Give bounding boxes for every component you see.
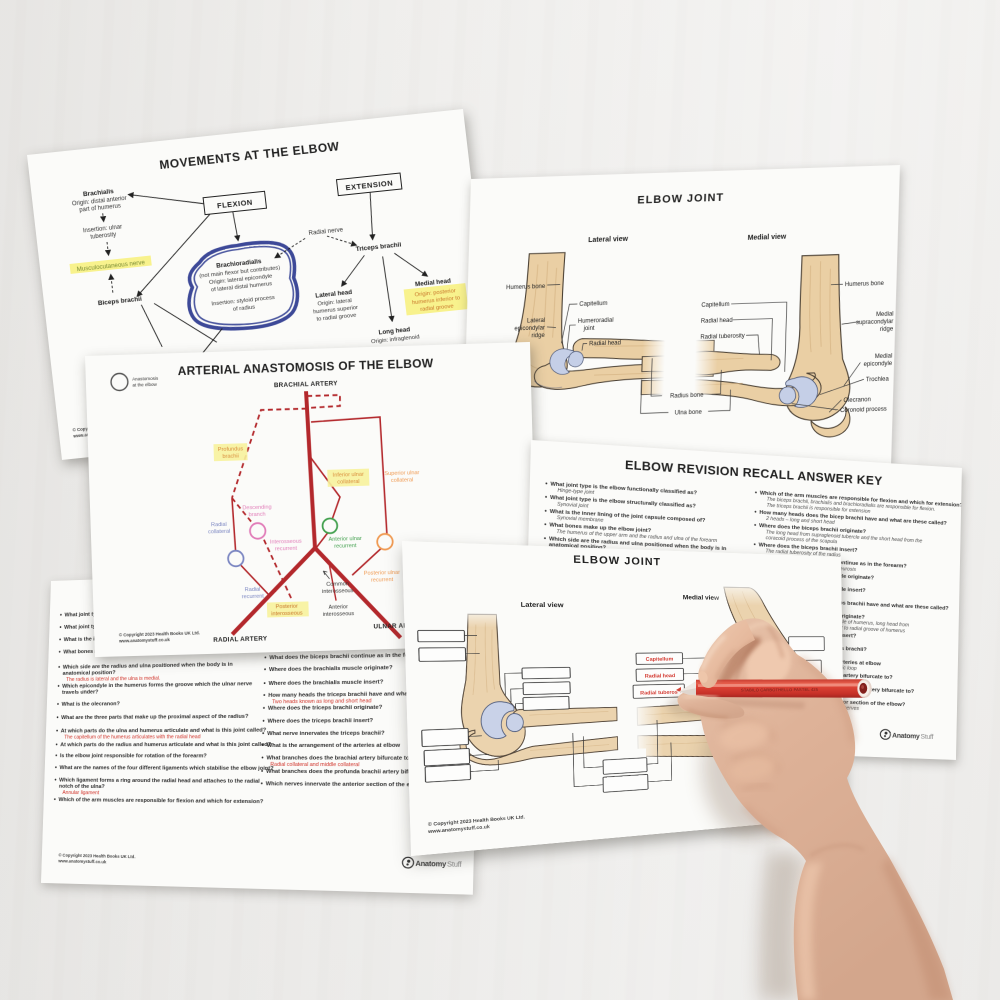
svg-text:MOVEMENTS AT THE ELBOW: MOVEMENTS AT THE ELBOW xyxy=(159,139,341,172)
svg-text:Anatomy: Anatomy xyxy=(415,860,446,868)
svg-text:ELBOW JOINT: ELBOW JOINT xyxy=(573,553,661,568)
svg-text:•: • xyxy=(55,753,57,759)
svg-text:•: • xyxy=(544,521,546,528)
svg-text:•: • xyxy=(755,490,757,497)
svg-text:Superior ulnar: Superior ulnar xyxy=(384,470,419,477)
svg-text:Profundus: Profundus xyxy=(218,446,244,453)
svg-text:Anterior ulnar: Anterior ulnar xyxy=(328,536,362,543)
svg-text:interosseous: interosseous xyxy=(323,611,355,618)
svg-text:Where does the triceps brachii: Where does the triceps brachii insert? xyxy=(267,718,373,725)
svg-text:•: • xyxy=(57,702,59,708)
svg-text:•: • xyxy=(263,681,265,687)
svg-text:recurrent: recurrent xyxy=(334,543,357,550)
svg-text:ARTERIAL ANASTOMOSIS OF THE EL: ARTERIAL ANASTOMOSIS OF THE ELBOW xyxy=(178,356,434,378)
svg-text:recurrent: recurrent xyxy=(371,577,394,584)
svg-text:Medial view: Medial view xyxy=(747,233,786,241)
svg-text:Lateral view: Lateral view xyxy=(521,600,564,608)
svg-text:ridge: ridge xyxy=(531,333,545,339)
svg-text:•: • xyxy=(754,509,756,516)
svg-text:•: • xyxy=(261,769,263,775)
svg-text:ELBOW JOINT: ELBOW JOINT xyxy=(637,192,724,207)
svg-text:Radial collateral and middle c: Radial collateral and middle collateral xyxy=(270,762,359,769)
svg-text:•: • xyxy=(545,480,547,487)
svg-text:collateral: collateral xyxy=(337,479,359,486)
svg-text:Capitellum: Capitellum xyxy=(701,302,729,309)
svg-text:What are the three parts that: What are the three parts that make up th… xyxy=(61,714,248,722)
svg-text:Biceps brachii: Biceps brachii xyxy=(98,296,143,308)
svg-text:•: • xyxy=(262,718,264,724)
svg-text:Anterior: Anterior xyxy=(328,604,348,611)
svg-text:supracondylar: supracondylar xyxy=(856,319,894,326)
svg-text:travels under?: travels under? xyxy=(62,689,99,696)
svg-text:Radial head: Radial head xyxy=(701,318,733,325)
svg-text:•: • xyxy=(56,728,58,734)
svg-text:notch of the ulna?: notch of the ulna? xyxy=(59,784,105,791)
svg-text:•: • xyxy=(261,781,263,787)
svg-text:•: • xyxy=(56,742,58,748)
svg-text:Medial: Medial xyxy=(875,353,893,360)
svg-text:•: • xyxy=(262,731,264,737)
svg-text:www.anatomystuff.co.uk: www.anatomystuff.co.uk xyxy=(118,637,170,643)
svg-text:Humerus bone: Humerus bone xyxy=(845,281,885,288)
svg-text:Posterior ulnar: Posterior ulnar xyxy=(364,570,400,577)
svg-text:Trochlea: Trochlea xyxy=(866,376,890,383)
svg-text:•: • xyxy=(54,777,56,783)
svg-text:Is the elbow joint responsible: Is the elbow joint responsible for rotat… xyxy=(60,753,207,759)
svg-text:BRACHIAL ARTERY: BRACHIAL ARTERY xyxy=(274,380,339,389)
svg-text:Stuff: Stuff xyxy=(447,861,462,869)
svg-text:Synovial joint: Synovial joint xyxy=(557,502,589,509)
svg-text:Descending: Descending xyxy=(242,505,271,512)
svg-text:Lateral view: Lateral view xyxy=(588,236,629,244)
svg-text:What nerve innervates the tric: What nerve innervates the triceps brachi… xyxy=(267,730,385,737)
svg-text:Olecranon: Olecranon xyxy=(843,397,871,404)
svg-text:Anatomy: Anatomy xyxy=(892,732,920,740)
svg-text:Hinge-type joint: Hinge-type joint xyxy=(557,488,594,496)
svg-text:Medial view: Medial view xyxy=(683,593,719,601)
svg-text:recurrent: recurrent xyxy=(242,594,265,601)
svg-text:Where does the brachialis musc: Where does the brachialis muscle origina… xyxy=(269,665,393,673)
svg-text:Capitellum: Capitellum xyxy=(579,301,607,308)
svg-text:of radius: of radius xyxy=(233,305,256,313)
svg-text:tuberosity: tuberosity xyxy=(90,232,116,241)
svg-text:•: • xyxy=(54,797,56,803)
svg-text:The capitellum of the humerus: The capitellum of the humerus articulate… xyxy=(64,734,201,741)
svg-text:branch: branch xyxy=(249,512,266,519)
svg-text:What branches does the brachia: What branches does the brachial artery b… xyxy=(266,755,413,762)
svg-text:•: • xyxy=(545,494,547,501)
svg-text:Which epicondyle in the humeru: Which epicondyle in the humerus forms th… xyxy=(62,681,252,690)
svg-text:Lateral: Lateral xyxy=(527,318,545,325)
svg-text:www.anatomystuff.co.uk: www.anatomystuff.co.uk xyxy=(57,858,107,864)
svg-text:anatomical position?: anatomical position? xyxy=(62,670,115,677)
svg-text:Triceps brachii: Triceps brachii xyxy=(355,241,402,253)
svg-text:•: • xyxy=(58,665,60,671)
svg-text:Common: Common xyxy=(326,581,349,588)
svg-text:•: • xyxy=(56,715,58,721)
svg-text:•: • xyxy=(545,508,547,515)
svg-text:at the elbow: at the elbow xyxy=(132,382,157,388)
svg-text:interosseous: interosseous xyxy=(271,611,303,618)
svg-text:•: • xyxy=(60,612,62,618)
svg-text:Where does the brachialis musc: Where does the brachialis muscle insert? xyxy=(268,679,383,687)
svg-text:•: • xyxy=(264,655,266,661)
svg-text:brachii: brachii xyxy=(222,453,239,460)
svg-text:Radial: Radial xyxy=(245,587,261,593)
svg-text:FLEXION: FLEXION xyxy=(217,198,254,211)
svg-text:•: • xyxy=(261,755,263,761)
svg-text:joint: joint xyxy=(583,326,595,332)
svg-text:Posterior: Posterior xyxy=(276,604,298,611)
svg-text:Where does the triceps brachii: Where does the triceps brachii originate… xyxy=(268,704,383,711)
svg-text:•: • xyxy=(263,693,265,699)
svg-text:collateral: collateral xyxy=(391,477,413,484)
svg-text:Anastomosis: Anastomosis xyxy=(132,376,159,382)
svg-text:epicondylar: epicondylar xyxy=(514,325,545,332)
svg-text:•: • xyxy=(544,535,546,542)
svg-text:At which parts do the ulna and: At which parts do the ulna and humerus a… xyxy=(61,727,267,734)
svg-text:What is the olecranon?: What is the olecranon? xyxy=(61,701,119,708)
svg-text:collateral: collateral xyxy=(208,529,230,536)
svg-text:recurrent: recurrent xyxy=(275,546,298,553)
svg-text:ridge: ridge xyxy=(880,326,894,332)
svg-text:Ulna bone: Ulna bone xyxy=(675,409,703,416)
svg-text:Coronoid process: Coronoid process xyxy=(840,406,887,414)
svg-text:•: • xyxy=(59,637,61,643)
svg-text:epicondyle: epicondyle xyxy=(864,361,893,368)
svg-text:What are the names of the four: What are the names of the four different… xyxy=(59,765,273,772)
svg-text:Humeroradial: Humeroradial xyxy=(578,318,614,325)
svg-text:•: • xyxy=(262,743,264,749)
svg-text:Radial head: Radial head xyxy=(589,340,621,347)
svg-text:Medial: Medial xyxy=(876,312,894,319)
svg-text:What is the arrangement of the: What is the arrangement of the arteries … xyxy=(267,742,402,749)
svg-text:•: • xyxy=(59,625,61,631)
svg-text:Which of the arm muscles are r: Which of the arm muscles are responsible… xyxy=(58,797,263,805)
svg-text:Capitellum: Capitellum xyxy=(646,657,674,663)
svg-text:•: • xyxy=(59,649,61,655)
svg-text:Radial nerve: Radial nerve xyxy=(308,226,344,237)
svg-text:Interosseous: Interosseous xyxy=(270,539,302,546)
svg-text:•: • xyxy=(57,684,59,690)
svg-text:Radial: Radial xyxy=(211,522,227,528)
svg-text:interosseous: interosseous xyxy=(322,588,354,595)
svg-text:Radius bone: Radius bone xyxy=(670,392,704,399)
svg-text:•: • xyxy=(264,667,266,673)
svg-text:Annular ligament: Annular ligament xyxy=(62,790,100,797)
svg-text:Which nerves innervate the ant: Which nerves innervate the anterior sect… xyxy=(266,781,428,789)
svg-text:•: • xyxy=(263,705,265,711)
svg-text:•: • xyxy=(754,522,756,529)
svg-text:Inferior ulnar: Inferior ulnar xyxy=(333,472,364,479)
svg-text:Radial tuberosity: Radial tuberosity xyxy=(700,333,745,340)
svg-text:Radial tuberos: Radial tuberos xyxy=(640,690,678,696)
svg-text:Stuff: Stuff xyxy=(920,733,933,741)
svg-text:Which side are the radius and: Which side are the radius and ulna posit… xyxy=(63,662,233,671)
svg-text:At which parts do the radius a: At which parts do the radius and humerus… xyxy=(60,742,271,749)
svg-text:Radial head: Radial head xyxy=(645,674,675,680)
svg-text:ELBOW REVISION RECALL ANSWER K: ELBOW REVISION RECALL ANSWER KEY xyxy=(625,458,883,488)
svg-text:•: • xyxy=(55,765,57,771)
svg-text:•: • xyxy=(754,541,756,548)
svg-text:RADIAL ARTERY: RADIAL ARTERY xyxy=(213,635,268,643)
